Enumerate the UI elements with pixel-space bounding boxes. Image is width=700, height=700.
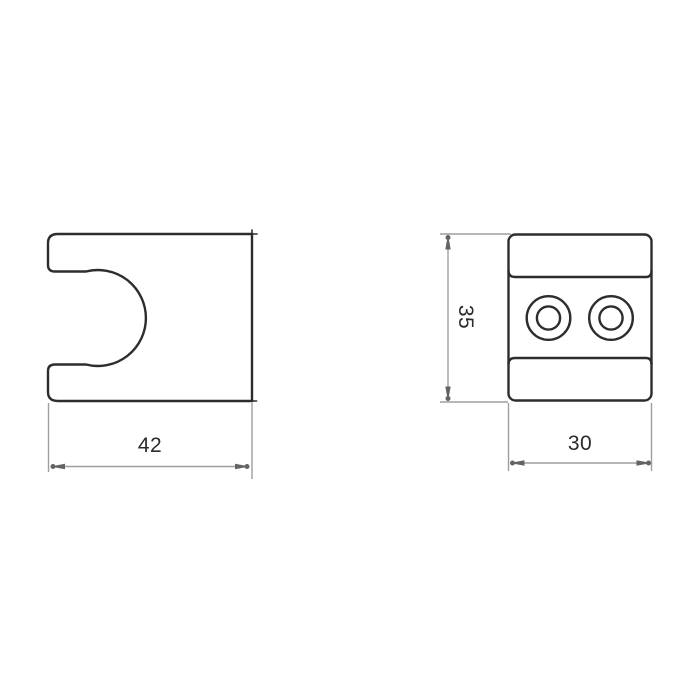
front-view (509, 235, 652, 401)
screw-hole-right-outer (589, 296, 633, 340)
side-view-outline (48, 234, 252, 401)
arrowhead-30-right-dot-icon (646, 461, 651, 466)
dimension-label-front-height: 35 (443, 294, 489, 340)
arrowhead-35-bottom-dot-icon (446, 396, 451, 401)
screw-hole-right-inner (599, 306, 622, 329)
front-view-bottom-groove-line (509, 358, 652, 364)
technical-drawing-canvas: 42 35 30 (0, 0, 700, 700)
front-view-outline (509, 235, 652, 401)
corner-overshoot-top-right (252, 230, 257, 234)
screw-hole-left-outer (527, 296, 571, 340)
screw-hole-left-inner (537, 306, 560, 329)
arrowhead-30-left-dot-icon (510, 461, 515, 466)
side-view (48, 230, 257, 401)
dimension-label-front-width: 30 (508, 433, 652, 454)
dimension-label-side-width: 42 (48, 435, 252, 456)
drawing-linework (0, 0, 700, 700)
arrowhead-42-right-dot-icon (245, 464, 250, 469)
arrowhead-35-top-dot-icon (446, 235, 451, 240)
arrowhead-42-left-dot-icon (51, 464, 56, 469)
front-view-top-groove-line (509, 271, 652, 277)
